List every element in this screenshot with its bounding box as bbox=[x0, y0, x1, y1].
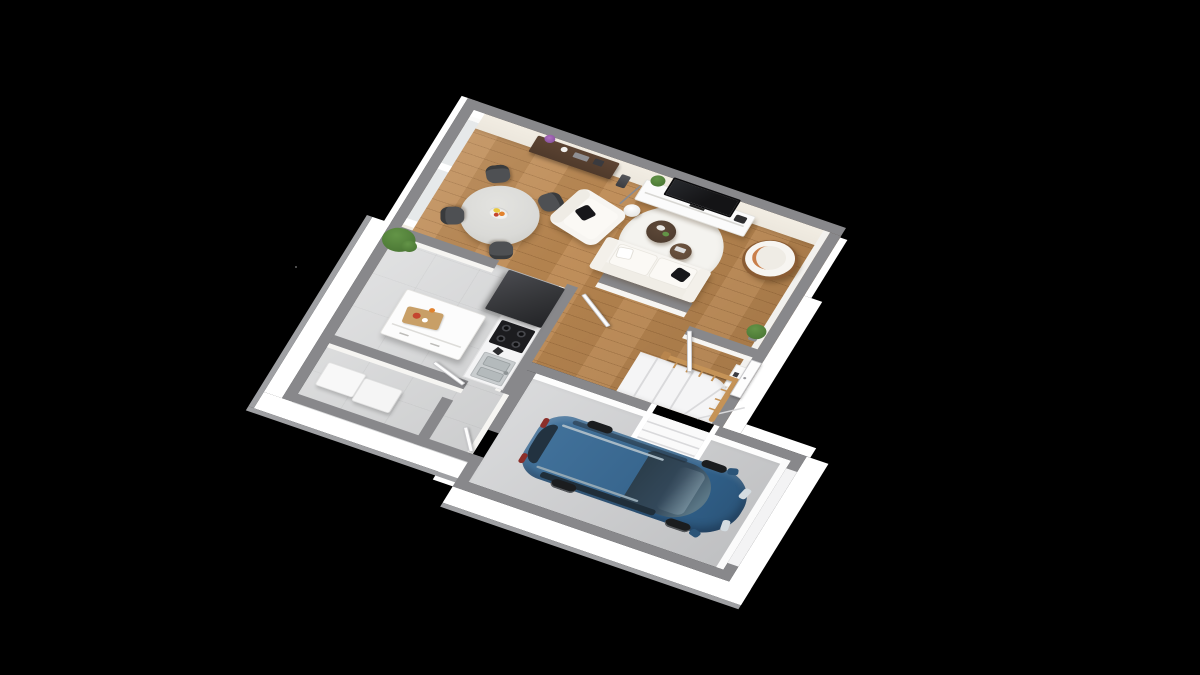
artifact-dot bbox=[295, 266, 297, 268]
burner bbox=[500, 324, 512, 333]
dining-chair bbox=[489, 241, 513, 259]
burner bbox=[515, 330, 527, 339]
dining-chair bbox=[440, 207, 464, 225]
burner bbox=[495, 334, 507, 343]
living-door-leaf-east bbox=[687, 331, 692, 372]
dining-chair bbox=[485, 164, 512, 184]
car-mirror bbox=[727, 468, 739, 476]
burner bbox=[510, 340, 522, 349]
floor-plan-render bbox=[250, 98, 994, 630]
barrel-armchair bbox=[742, 240, 799, 281]
